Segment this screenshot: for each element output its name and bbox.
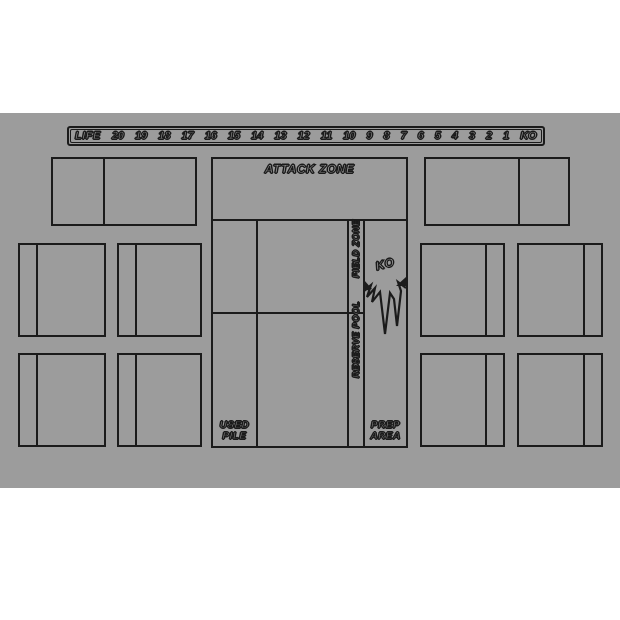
play-board: ATTACK ZONE USEDPILE PREPAREA FIELD ZONE… bbox=[211, 157, 408, 448]
double-card-slot[interactable] bbox=[424, 157, 570, 226]
attack-zone[interactable]: ATTACK ZONE bbox=[213, 159, 406, 219]
card-slot[interactable] bbox=[18, 353, 106, 447]
card-slot-divider bbox=[583, 355, 585, 445]
life-value[interactable]: 16 bbox=[205, 130, 217, 142]
card-slot[interactable] bbox=[517, 243, 603, 337]
life-value[interactable]: 15 bbox=[228, 130, 240, 142]
life-value[interactable]: 12 bbox=[298, 130, 310, 142]
life-value[interactable]: 4 bbox=[452, 130, 458, 142]
life-value[interactable]: 13 bbox=[274, 130, 286, 142]
ko-burst-icon bbox=[356, 266, 410, 342]
life-value[interactable]: 9 bbox=[366, 130, 372, 142]
card-slot-divider bbox=[36, 355, 38, 445]
card-slot[interactable] bbox=[117, 353, 202, 447]
card-slot[interactable] bbox=[517, 353, 603, 447]
life-value[interactable]: 18 bbox=[158, 130, 170, 142]
life-value[interactable]: 19 bbox=[135, 130, 147, 142]
zone-divider bbox=[256, 219, 258, 446]
double-card-slot[interactable] bbox=[51, 157, 197, 226]
life-value[interactable]: 6 bbox=[418, 130, 424, 142]
card-slot-divider bbox=[518, 159, 520, 224]
life-label: LIFE bbox=[75, 130, 101, 142]
card-slot-divider bbox=[135, 245, 137, 335]
card-slot[interactable] bbox=[420, 353, 505, 447]
life-value[interactable]: 8 bbox=[383, 130, 389, 142]
attack-zone-label: ATTACK ZONE bbox=[213, 162, 406, 176]
used-pile-zone[interactable]: USEDPILE bbox=[213, 221, 256, 446]
playmat-image: LIFE 2019181716151413121110987654321KO A… bbox=[0, 0, 620, 620]
card-slot[interactable] bbox=[117, 243, 202, 337]
card-slot-divider bbox=[135, 355, 137, 445]
life-value[interactable]: 2 bbox=[486, 130, 492, 142]
life-value[interactable]: KO bbox=[520, 130, 537, 142]
used-pile-label: USEDPILE bbox=[213, 420, 256, 442]
card-slot[interactable] bbox=[420, 243, 505, 337]
reserve-pool-zone[interactable] bbox=[258, 314, 347, 446]
life-value[interactable]: 20 bbox=[112, 130, 124, 142]
life-value[interactable]: 17 bbox=[181, 130, 193, 142]
life-value[interactable]: 7 bbox=[401, 130, 407, 142]
prep-area-label: PREPAREA bbox=[365, 420, 406, 442]
life-value[interactable]: 3 bbox=[469, 130, 475, 142]
life-value[interactable]: 11 bbox=[321, 130, 332, 142]
card-slot-divider bbox=[485, 355, 487, 445]
life-value[interactable]: 5 bbox=[435, 130, 441, 142]
zone-divider bbox=[213, 312, 365, 314]
zone-divider bbox=[213, 219, 406, 221]
card-slot[interactable] bbox=[18, 243, 106, 337]
life-value[interactable]: 14 bbox=[251, 130, 263, 142]
card-slot-divider bbox=[36, 245, 38, 335]
life-value[interactable]: 1 bbox=[503, 130, 509, 142]
card-slot-divider bbox=[583, 245, 585, 335]
field-zone[interactable] bbox=[258, 221, 347, 312]
card-slot-divider bbox=[103, 159, 105, 224]
life-track: LIFE 2019181716151413121110987654321KO bbox=[67, 126, 545, 146]
card-slot-divider bbox=[485, 245, 487, 335]
life-value[interactable]: 10 bbox=[343, 130, 355, 142]
